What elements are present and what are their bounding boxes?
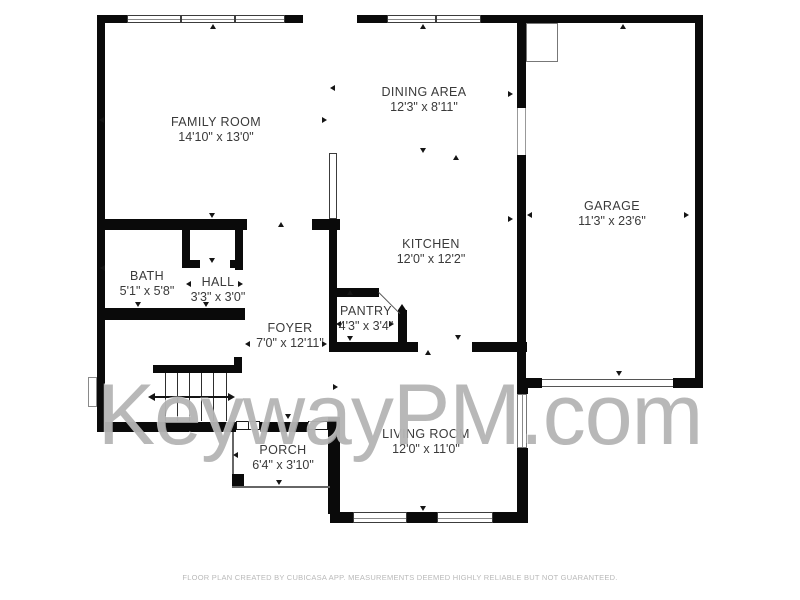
- wall: [285, 15, 303, 23]
- wall: [407, 512, 437, 523]
- room-dimensions: 11'3" x 23'6": [578, 214, 646, 229]
- room-name: HALL: [191, 275, 246, 290]
- porch-edge: [232, 486, 330, 488]
- dimension-marker: [420, 506, 426, 511]
- room-dimensions: 4'3" x 3'4": [339, 319, 394, 334]
- dimension-marker: [508, 91, 513, 97]
- wall: [398, 310, 407, 352]
- room-label-family-room: FAMILY ROOM 14'10" x 13'0": [171, 115, 261, 145]
- wall: [182, 260, 200, 268]
- door-opening: [517, 108, 526, 155]
- watermark: KeywayPM.com: [0, 372, 800, 458]
- room-name: DINING AREA: [382, 85, 467, 100]
- floor-plan: FAMILY ROOM 14'10" x 13'0" DINING AREA 1…: [0, 0, 800, 600]
- room-name: KITCHEN: [397, 237, 466, 252]
- wall: [493, 512, 528, 523]
- dimension-marker: [527, 212, 532, 218]
- wall: [481, 15, 703, 23]
- footer-disclaimer: FLOOR PLAN CREATED BY CUBICASA APP. MEAS…: [0, 573, 800, 582]
- dimension-marker: [209, 258, 215, 263]
- room-name: GARAGE: [578, 199, 646, 214]
- wall: [695, 15, 703, 388]
- dimension-marker: [135, 302, 141, 307]
- wall: [357, 15, 387, 23]
- dimension-marker: [684, 212, 689, 218]
- wall: [97, 219, 247, 230]
- utility-box: [526, 23, 558, 62]
- dimension-marker: [620, 24, 626, 29]
- room-label-foyer: FOYER 7'0" x 12'11": [256, 321, 324, 351]
- room-dimensions: 12'0" x 12'2": [397, 252, 466, 267]
- dimension-marker: [209, 213, 215, 218]
- wall: [234, 357, 242, 367]
- dimension-marker: [210, 24, 216, 29]
- room-label-garage: GARAGE 11'3" x 23'6": [578, 199, 646, 229]
- room-name: BATH: [120, 269, 175, 284]
- dimension-marker: [425, 350, 431, 355]
- wall: [337, 288, 379, 297]
- window: [127, 15, 285, 23]
- wall: [230, 260, 243, 268]
- dimension-marker: [330, 85, 335, 91]
- dimension-marker: [453, 155, 459, 160]
- room-dimensions: 7'0" x 12'11": [256, 336, 324, 351]
- dimension-marker: [322, 117, 327, 123]
- dimension-marker: [347, 290, 353, 295]
- window: [437, 512, 493, 523]
- room-label-bath: BATH 5'1" x 5'8": [120, 269, 175, 299]
- window: [387, 15, 481, 23]
- dimension-marker: [455, 335, 461, 340]
- room-label-hall: HALL 3'3" x 3'0": [191, 275, 246, 305]
- dimension-marker: [420, 148, 426, 153]
- room-label-kitchen: KITCHEN 12'0" x 12'2": [397, 237, 466, 267]
- dimension-marker: [278, 222, 284, 227]
- cased-opening: [329, 153, 337, 219]
- door-hinge-marker: [398, 304, 406, 310]
- dimension-marker: [276, 480, 282, 485]
- wall: [97, 308, 245, 320]
- room-dimensions: 5'1" x 5'8": [120, 284, 175, 299]
- porch-post: [232, 474, 244, 486]
- dimension-marker: [99, 117, 104, 123]
- window: [353, 512, 407, 523]
- room-name: PANTRY: [339, 304, 394, 319]
- dimension-marker: [100, 265, 105, 271]
- dimension-marker: [245, 341, 250, 347]
- dimension-marker: [420, 24, 426, 29]
- room-label-pantry: PANTRY 4'3" x 3'4": [339, 304, 394, 334]
- dimension-marker: [508, 216, 513, 222]
- room-name: FAMILY ROOM: [171, 115, 261, 130]
- wall: [517, 21, 526, 108]
- wall: [472, 342, 527, 352]
- room-dimensions: 3'3" x 3'0": [191, 290, 246, 305]
- room-dimensions: 12'3" x 8'11": [382, 100, 467, 115]
- dimension-marker: [347, 336, 353, 341]
- room-dimensions: 14'10" x 13'0": [171, 130, 261, 145]
- room-name: FOYER: [256, 321, 324, 336]
- room-label-dining-area: DINING AREA 12'3" x 8'11": [382, 85, 467, 115]
